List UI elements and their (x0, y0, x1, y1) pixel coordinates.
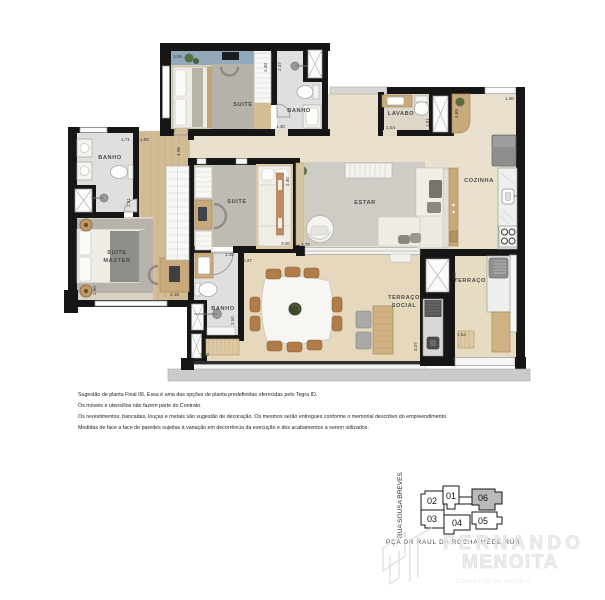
svg-text:5.27: 5.27 (243, 258, 252, 263)
svg-text:2.50: 2.50 (92, 286, 97, 295)
svg-text:Os móveis e utensílios não faz: Os móveis e utensílios não fazem parte d… (78, 403, 202, 409)
svg-text:Os revestimentos, bancadas, lo: Os revestimentos, bancadas, louças e met… (78, 414, 448, 420)
svg-text:1.51: 1.51 (425, 118, 430, 127)
svg-text:4.65: 4.65 (454, 109, 459, 118)
svg-text:3.07: 3.07 (413, 342, 418, 351)
svg-text:02: 02 (427, 496, 437, 506)
svg-text:1.30: 1.30 (276, 124, 285, 129)
svg-text:1.35: 1.35 (225, 252, 234, 257)
svg-text:3.07: 3.07 (452, 271, 457, 280)
svg-text:1.54: 1.54 (386, 125, 395, 130)
svg-text:7.22: 7.22 (200, 352, 209, 357)
svg-text:Sugestão de planta Final 06. E: Sugestão de planta Final 06. Essa é uma … (78, 392, 317, 398)
svg-text:2.37: 2.37 (277, 62, 282, 71)
svg-text:BANHO: BANHO (287, 108, 311, 114)
svg-text:2.40: 2.40 (263, 63, 268, 72)
svg-text:COZINHA: COZINHA (464, 178, 494, 184)
svg-text:SUITE: SUITE (227, 199, 246, 205)
svg-text:MENOITA: MENOITA (462, 552, 559, 573)
svg-text:03: 03 (427, 514, 437, 524)
svg-text:2.40: 2.40 (285, 177, 290, 186)
svg-text:TERRAÇO: TERRAÇO (388, 295, 420, 301)
svg-text:3.00: 3.00 (281, 241, 290, 246)
svg-text:RUA SOUSA BREVES: RUA SOUSA BREVES (397, 472, 404, 538)
svg-text:1.50: 1.50 (140, 137, 149, 142)
svg-text:1.71: 1.71 (121, 137, 130, 142)
svg-text:4.70: 4.70 (301, 242, 310, 247)
svg-text:SOCIAL: SOCIAL (392, 303, 417, 309)
svg-text:2.50: 2.50 (230, 316, 235, 325)
svg-text:TERRAÇO: TERRAÇO (454, 278, 486, 284)
svg-text:3.05: 3.05 (173, 54, 182, 59)
svg-text:01: 01 (446, 491, 456, 501)
svg-text:LAVABO: LAVABO (388, 111, 414, 117)
svg-text:1.90: 1.90 (505, 96, 514, 101)
svg-text:4.95: 4.95 (176, 147, 181, 156)
svg-text:SUITE: SUITE (107, 250, 126, 256)
svg-text:ESTAR: ESTAR (354, 200, 376, 206)
svg-text:BANHO: BANHO (211, 306, 235, 312)
svg-text:05: 05 (478, 516, 488, 526)
svg-text:Medidas de face a face de pare: Medidas de face a face de paredes sujeit… (78, 425, 369, 431)
svg-text:SUITE: SUITE (233, 102, 252, 108)
svg-text:2.31: 2.31 (126, 198, 131, 207)
svg-text:3.35: 3.35 (170, 292, 179, 297)
svg-text:04: 04 (452, 518, 462, 528)
svg-text:MASTER: MASTER (103, 258, 130, 264)
svg-text:BANHO: BANHO (98, 155, 122, 161)
svg-text:06: 06 (478, 493, 488, 503)
svg-text:FERNANDO: FERNANDO (443, 533, 584, 554)
svg-text:CORRETOR DE IMÓVEIS: CORRETOR DE IMÓVEIS (456, 578, 530, 585)
svg-text:1.54: 1.54 (457, 332, 466, 337)
